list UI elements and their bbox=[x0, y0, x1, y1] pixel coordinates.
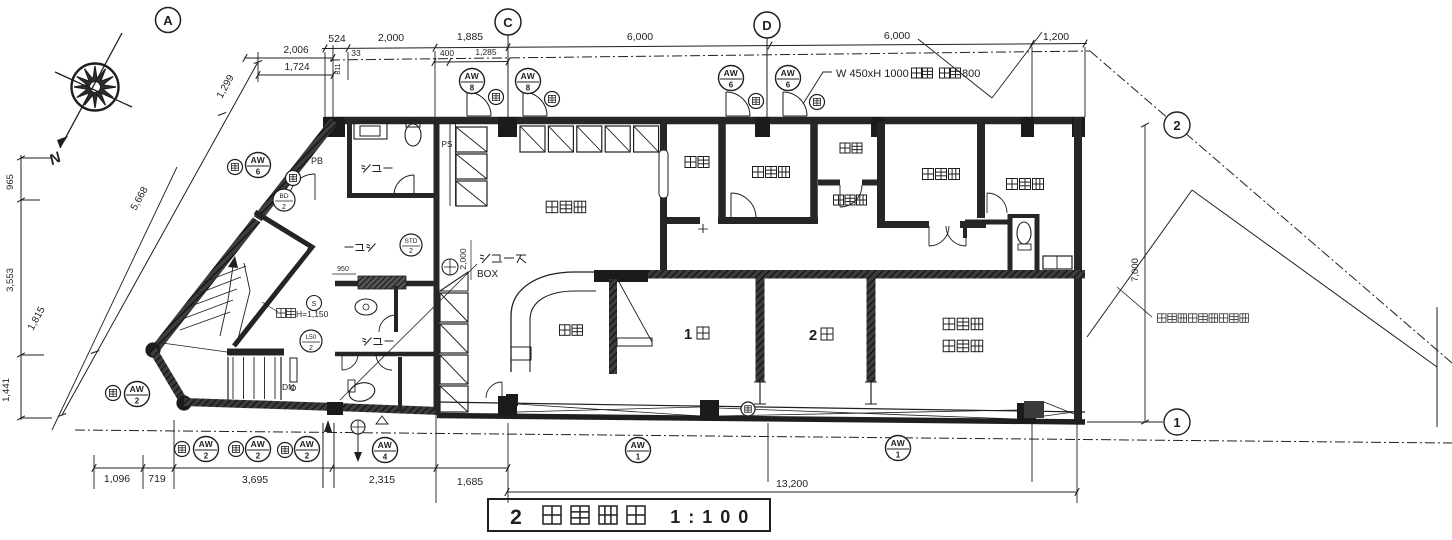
svg-text:811: 811 bbox=[335, 63, 342, 74]
svg-text:1: 1 bbox=[896, 451, 901, 460]
svg-text:AW: AW bbox=[631, 440, 646, 450]
svg-text:33: 33 bbox=[351, 48, 361, 58]
svg-text:2: 2 bbox=[809, 327, 817, 344]
svg-text:2: 2 bbox=[409, 248, 413, 255]
svg-text:2,006: 2,006 bbox=[283, 45, 308, 56]
svg-text:1,285: 1,285 bbox=[475, 47, 497, 57]
svg-text:A: A bbox=[163, 13, 173, 28]
svg-text:2: 2 bbox=[1173, 118, 1180, 133]
svg-text:S: S bbox=[312, 301, 317, 308]
svg-text:PB: PB bbox=[311, 156, 323, 166]
svg-text:1,885: 1,885 bbox=[457, 31, 483, 43]
svg-text:7,000: 7,000 bbox=[1130, 258, 1141, 282]
svg-text:3,553: 3,553 bbox=[5, 268, 16, 292]
svg-text:C: C bbox=[503, 15, 513, 30]
svg-text:AW: AW bbox=[724, 68, 739, 78]
svg-text:400: 400 bbox=[440, 48, 454, 58]
svg-text:W 450xH 1000: W 450xH 1000 bbox=[836, 68, 909, 80]
svg-text:1 : 1 0 0: 1 : 1 0 0 bbox=[670, 507, 750, 527]
svg-text:AW: AW bbox=[251, 439, 266, 449]
svg-text:AW: AW bbox=[378, 440, 393, 450]
svg-text:2,315: 2,315 bbox=[369, 474, 395, 486]
svg-text:1,724: 1,724 bbox=[284, 62, 309, 73]
svg-text:1: 1 bbox=[636, 453, 641, 462]
svg-text:800: 800 bbox=[962, 68, 980, 80]
svg-text:8: 8 bbox=[526, 84, 531, 93]
svg-text:L50: L50 bbox=[306, 334, 317, 341]
svg-text:H=1,150: H=1,150 bbox=[296, 309, 329, 319]
svg-text:8: 8 bbox=[470, 84, 475, 93]
svg-text:3,695: 3,695 bbox=[242, 474, 268, 486]
svg-text:AW: AW bbox=[130, 384, 145, 394]
svg-text:AW: AW bbox=[465, 71, 480, 81]
svg-text:1,096: 1,096 bbox=[104, 473, 130, 485]
svg-text:4: 4 bbox=[383, 453, 388, 462]
svg-text:6,000: 6,000 bbox=[627, 31, 653, 43]
svg-text:2,000: 2,000 bbox=[378, 32, 404, 44]
svg-text:AW: AW bbox=[199, 439, 214, 449]
svg-text:AW: AW bbox=[300, 439, 315, 449]
svg-text:2,000: 2,000 bbox=[458, 248, 468, 270]
svg-text:13,200: 13,200 bbox=[776, 478, 808, 490]
svg-text:AW: AW bbox=[891, 438, 906, 448]
svg-text:1,685: 1,685 bbox=[457, 476, 483, 488]
svg-text:BOX: BOX bbox=[477, 269, 498, 280]
svg-text:1: 1 bbox=[1173, 415, 1180, 430]
svg-text:6,000: 6,000 bbox=[884, 30, 910, 42]
svg-text:1,441: 1,441 bbox=[1, 378, 12, 402]
svg-text:950: 950 bbox=[337, 266, 349, 273]
svg-text:2: 2 bbox=[510, 506, 522, 529]
svg-text:PS: PS bbox=[442, 140, 453, 149]
svg-text:719: 719 bbox=[148, 473, 166, 485]
svg-text:2: 2 bbox=[256, 452, 261, 461]
svg-text:AW: AW bbox=[251, 155, 266, 165]
svg-text:AW: AW bbox=[781, 68, 796, 78]
svg-text:2: 2 bbox=[309, 345, 313, 352]
svg-text:2: 2 bbox=[282, 204, 286, 211]
svg-text:6: 6 bbox=[729, 81, 734, 90]
svg-text:AW: AW bbox=[521, 71, 536, 81]
svg-text:D: D bbox=[762, 18, 771, 33]
svg-text:6: 6 bbox=[256, 168, 261, 177]
svg-text:2: 2 bbox=[135, 397, 140, 406]
svg-text:2: 2 bbox=[305, 452, 310, 461]
svg-text:STD: STD bbox=[405, 238, 418, 245]
svg-text:2: 2 bbox=[204, 452, 209, 461]
svg-text:965: 965 bbox=[5, 174, 16, 190]
svg-text:BD: BD bbox=[279, 193, 288, 200]
svg-text:6: 6 bbox=[786, 81, 791, 90]
svg-text:1,200: 1,200 bbox=[1043, 31, 1069, 43]
svg-text:1: 1 bbox=[684, 326, 692, 343]
svg-text:524: 524 bbox=[328, 33, 346, 45]
